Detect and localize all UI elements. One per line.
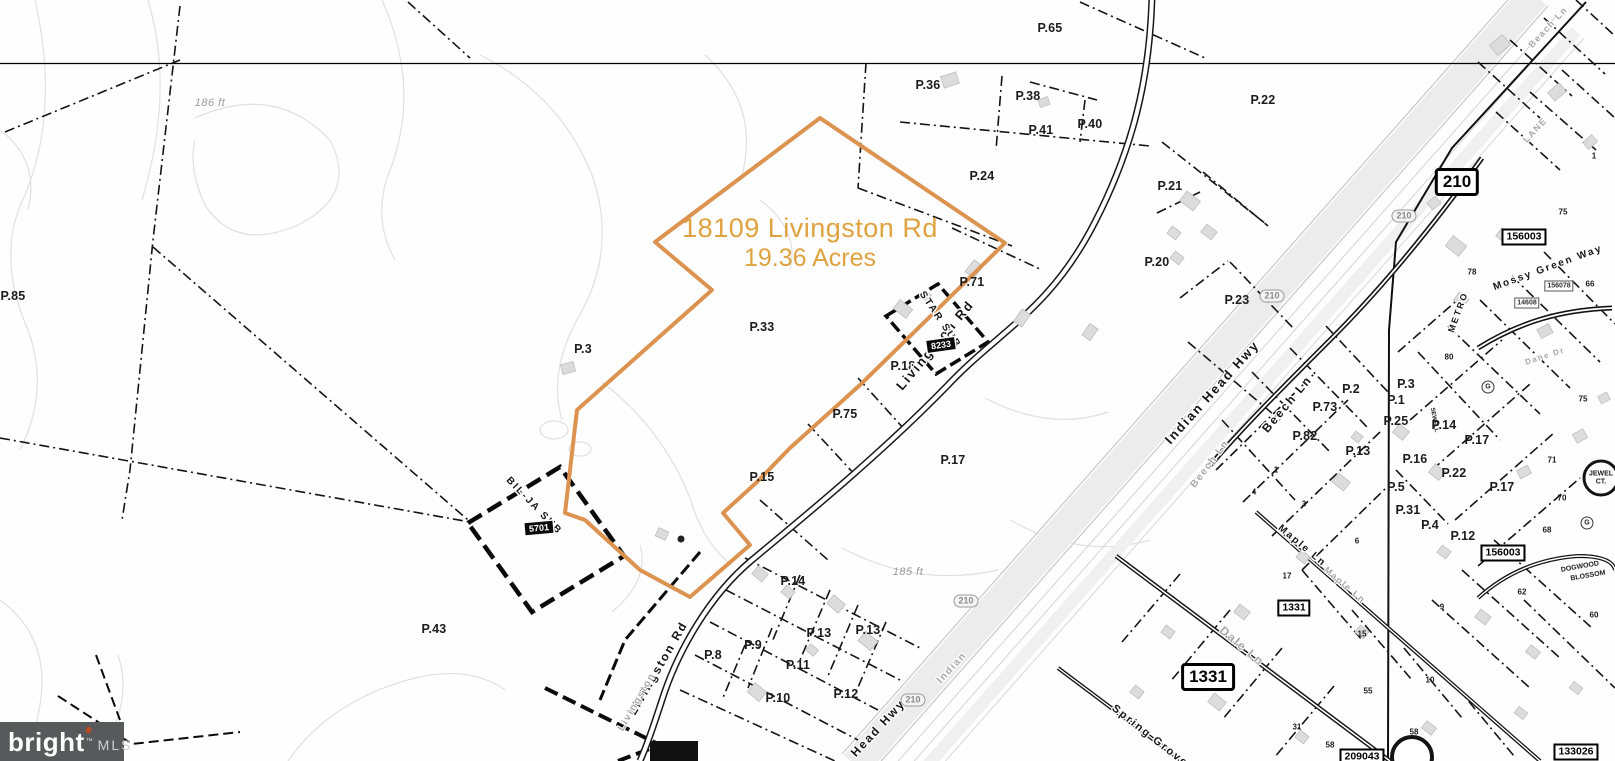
route-badge: 156003 [1501,229,1546,246]
highlight-acres: 19.36 Acres [655,244,965,273]
logo-brand-text: bright [8,729,85,755]
map-label: P.11 [786,658,810,672]
map-label: P.65 [1038,21,1063,35]
map-label: P.13 [856,623,881,637]
map-label: P.43 [422,622,447,636]
map-label: P.17 [1465,433,1490,447]
route-badge: 8233 [926,337,955,353]
road-label: Indian Head Hwy [1162,337,1263,447]
map-label: P.10 [766,691,791,705]
map-label: P.12 [1451,529,1476,543]
map-label: 6 [1355,537,1359,546]
route-badge: 1331 [1181,663,1235,691]
map-label: 4 [1252,488,1256,497]
road-label: Beech Ln [1188,438,1231,490]
map-label: CT. [1596,479,1607,486]
road-label: Dale Ln [1217,623,1267,668]
map-label: P.20 [1145,255,1170,269]
route-badge: 14608 [1514,298,1539,309]
map-label: P.16 [1403,452,1428,466]
map-label: 17 [1283,572,1292,581]
map-label: P.40 [1078,117,1103,131]
map-label: P.17 [1490,480,1515,494]
map-label: P.4 [1421,518,1439,532]
map-label: P.8 [704,648,722,662]
road-label: Indian [935,650,969,686]
route-badge: 210 [900,694,925,707]
map-label: P.15 [750,470,775,484]
map-label: G [1581,517,1594,530]
map-label: 55 [1364,687,1373,696]
route-badge: 210 [953,595,978,608]
road-label: Beech Ln [1259,373,1315,436]
map-label: P.3 [574,342,592,356]
map-label: P.22 [1251,93,1276,107]
road-label: METRO [1446,290,1470,333]
map-label: 58 [1326,741,1335,750]
road-label: Maple Ln [1322,565,1368,605]
map-label: P.36 [916,78,941,92]
route-badge: 156003 [1480,545,1525,562]
logo-trademark: ™ [86,738,93,745]
road-label: Maple Ln [1276,523,1329,570]
map-label: BLOSSOM [1570,569,1606,582]
map-label: 78 [1468,268,1477,277]
route-badge: 209043 [1339,749,1384,761]
map-label: P.38 [1016,89,1041,103]
map-label: P.24 [970,169,995,183]
map-label: 1 [1274,466,1278,475]
map-label: 9 [1440,603,1444,612]
map-label: P.82 [1293,429,1318,443]
map-label: 70 [1558,494,1567,503]
map-label: 31 [1293,723,1302,732]
road-label: Head Hwy [848,696,908,759]
road-label: Dane Dr [1524,345,1566,366]
map-label: 75 [1579,395,1588,404]
map-label: 186 ft [195,97,226,109]
map-label: 10 [1426,676,1435,685]
map-label: 60 [1590,611,1599,620]
map-label: P.3 [1397,377,1415,391]
road-label: Spring Grove [1109,702,1190,761]
map-label: 75 [1559,208,1568,217]
road-label: Beach Ln [1526,4,1569,49]
road-label: LANE [1521,115,1549,144]
map-label: 1 [1592,152,1596,161]
map-label: P.71 [960,275,985,289]
map-label: P.9 [744,638,762,652]
map-label: P.23 [1225,293,1250,307]
map-label: P.12 [834,687,859,701]
map-label: P.13 [1346,444,1371,458]
route-badge: 5701 [525,521,554,535]
map-labels-layer: P.65P.36P.38P.41P.40P.24P.22P.21P.20P.23… [0,0,1615,761]
map-label: 58 [1410,728,1419,737]
route-badge: 1331 [1277,600,1310,617]
map-label: P.85 [1,289,26,303]
route-badge: 133026 [1553,744,1598,761]
map-label: P.5 [1387,480,1405,494]
map-label: P.22 [1442,466,1467,480]
highlight-address: 18109 Livingston Rd [655,213,965,244]
map-label: P.25 [1384,414,1409,428]
map-label: 68 [1543,526,1552,535]
map-label: 3 [1302,500,1306,509]
map-viewport[interactable]: P.65P.36P.38P.41P.40P.24P.22P.21P.20P.23… [0,0,1615,761]
logo-spark-icon [85,726,92,733]
map-label: P.73 [1313,400,1338,414]
map-label: P.33 [750,320,775,334]
map-label: JEWEL [1589,471,1613,478]
route-badge: 210 [1259,290,1284,303]
brightmls-logo: bright™ MLS [0,722,124,761]
logo-mls-text: MLS [98,737,133,753]
map-label: P.1 [1387,393,1405,407]
road-label: Livingston [616,671,658,733]
map-label: P.2 [1342,382,1360,396]
map-label: 62 [1518,588,1527,597]
highlight-callout: 18109 Livingston Rd 19.36 Acres [655,213,965,273]
map-label: 71 [1548,456,1557,465]
map-label: P.21 [1158,179,1183,193]
map-label: 80 [1445,353,1454,362]
map-label: P.13 [807,626,832,640]
route-badge: 210 [1435,168,1479,196]
map-label: 185 ft [893,566,924,578]
map-label: P.75 [833,407,858,421]
route-badge: 210 [1391,210,1416,223]
map-label: G [1482,381,1495,394]
route-badge: 156078 [1544,281,1573,292]
map-label: P.14 [781,574,806,588]
map-label: 66 [1586,280,1595,289]
map-label: P.17 [941,453,966,467]
map-label: P.41 [1029,123,1054,137]
map-label: 15 [1358,630,1367,639]
map-label: P.31 [1396,503,1421,517]
